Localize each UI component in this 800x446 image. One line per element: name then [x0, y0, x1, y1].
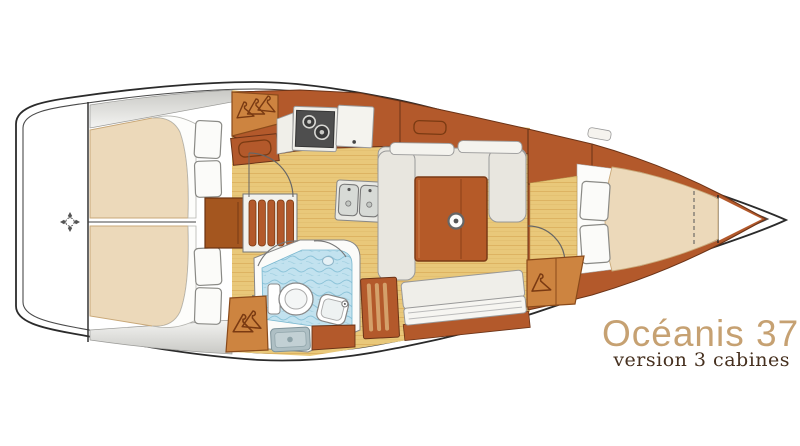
mast-post-center — [454, 219, 459, 224]
hanging-locker-starboard — [226, 296, 268, 352]
drain — [367, 202, 372, 207]
starboard-lockers — [360, 277, 399, 339]
chart-table — [205, 198, 245, 248]
pillow — [194, 120, 222, 158]
settee-left-arm — [378, 151, 415, 280]
model-title: Océanis 37 — [602, 313, 799, 354]
hanging-locker-forward — [527, 256, 584, 307]
bow-locker-handle — [587, 127, 611, 141]
yacht-floorplan: Océanis 37 version 3 cabines — [0, 0, 800, 446]
pillow — [580, 224, 611, 264]
galley-drawer-unit — [231, 134, 280, 166]
starboard-settee — [399, 270, 530, 341]
galley-sink-unit — [335, 180, 383, 222]
toilet-icon — [268, 283, 313, 315]
berth-mattress — [90, 118, 188, 218]
pillow — [194, 288, 221, 325]
forward-cabin-entry-floor — [530, 176, 577, 264]
galley-fridge — [336, 105, 374, 148]
pillow — [194, 247, 222, 285]
companionway-steps — [249, 200, 294, 246]
shower-head — [323, 257, 334, 266]
variant-subtitle: version 3 cabines — [612, 349, 790, 371]
pillow — [580, 181, 611, 221]
shower-drain-icon — [270, 327, 310, 352]
settee-right-arm — [489, 149, 526, 222]
berth-mattress — [90, 226, 188, 326]
drain — [346, 201, 351, 206]
head-bathroom — [254, 240, 360, 352]
stove — [292, 106, 338, 152]
floorplan-canvas: Océanis 37 version 3 cabines — [0, 0, 800, 446]
galley-counter — [277, 113, 293, 154]
vberth-mattress — [605, 167, 718, 271]
settee-back-cushion — [390, 142, 454, 155]
pillow — [194, 161, 221, 198]
head-counter — [312, 325, 355, 350]
settee-back-cushion — [458, 140, 522, 153]
